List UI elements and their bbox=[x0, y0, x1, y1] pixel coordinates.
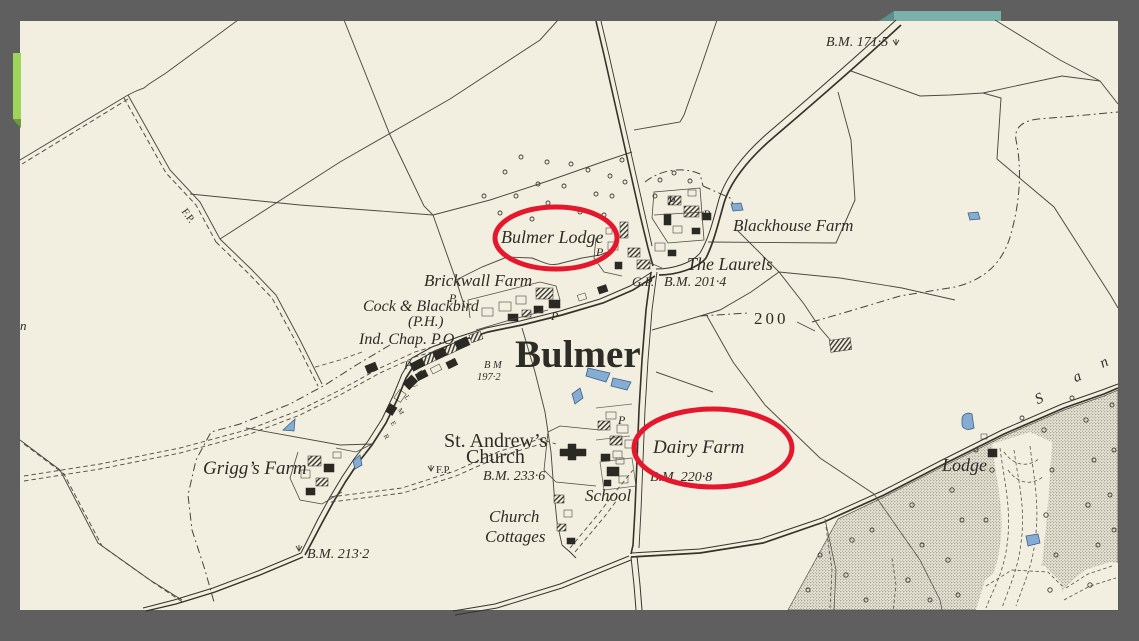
svg-text:P: P bbox=[403, 358, 412, 372]
svg-text:B.M. 201·4: B.M. 201·4 bbox=[664, 275, 726, 290]
svg-text:The Laurels: The Laurels bbox=[687, 254, 773, 274]
svg-text:n: n bbox=[20, 318, 27, 333]
svg-text:B M: B M bbox=[484, 360, 503, 371]
svg-text:Ind. Chap. P.O: Ind. Chap. P.O bbox=[358, 331, 455, 348]
svg-text:Cock & Blackbird: Cock & Blackbird bbox=[363, 298, 480, 315]
svg-text:Church: Church bbox=[489, 507, 539, 526]
svg-text:G.P.: G.P. bbox=[632, 274, 654, 289]
svg-text:Blackhouse Farm: Blackhouse Farm bbox=[733, 216, 853, 235]
svg-text:Bulmer Lodge: Bulmer Lodge bbox=[501, 227, 604, 247]
svg-text:P: P bbox=[667, 194, 676, 208]
svg-text:F.P.: F.P. bbox=[436, 465, 451, 476]
svg-text:P: P bbox=[550, 309, 559, 323]
svg-text:B.M. 213·2: B.M. 213·2 bbox=[307, 547, 369, 562]
svg-text:200: 200 bbox=[754, 309, 789, 328]
svg-text:Grigg’s Farm: Grigg’s Farm bbox=[203, 458, 307, 479]
svg-text:Church: Church bbox=[466, 446, 525, 468]
svg-text:P: P bbox=[702, 207, 711, 221]
svg-text:197·2: 197·2 bbox=[477, 372, 501, 383]
svg-text:B.M. 233·6: B.M. 233·6 bbox=[483, 469, 545, 484]
svg-text:Dairy Farm: Dairy Farm bbox=[652, 437, 744, 458]
svg-text:(P.H.): (P.H.) bbox=[408, 314, 444, 330]
svg-text:P: P bbox=[617, 413, 626, 427]
svg-text:B.M. 171·5: B.M. 171·5 bbox=[826, 35, 888, 50]
svg-text:Bulmer: Bulmer bbox=[515, 333, 641, 376]
svg-text:P: P bbox=[448, 291, 457, 305]
svg-text:Brickwall Farm: Brickwall Farm bbox=[424, 271, 532, 290]
svg-text:Cottages: Cottages bbox=[485, 527, 546, 546]
svg-text:School: School bbox=[585, 486, 632, 505]
svg-text:Lodge: Lodge bbox=[941, 455, 987, 475]
